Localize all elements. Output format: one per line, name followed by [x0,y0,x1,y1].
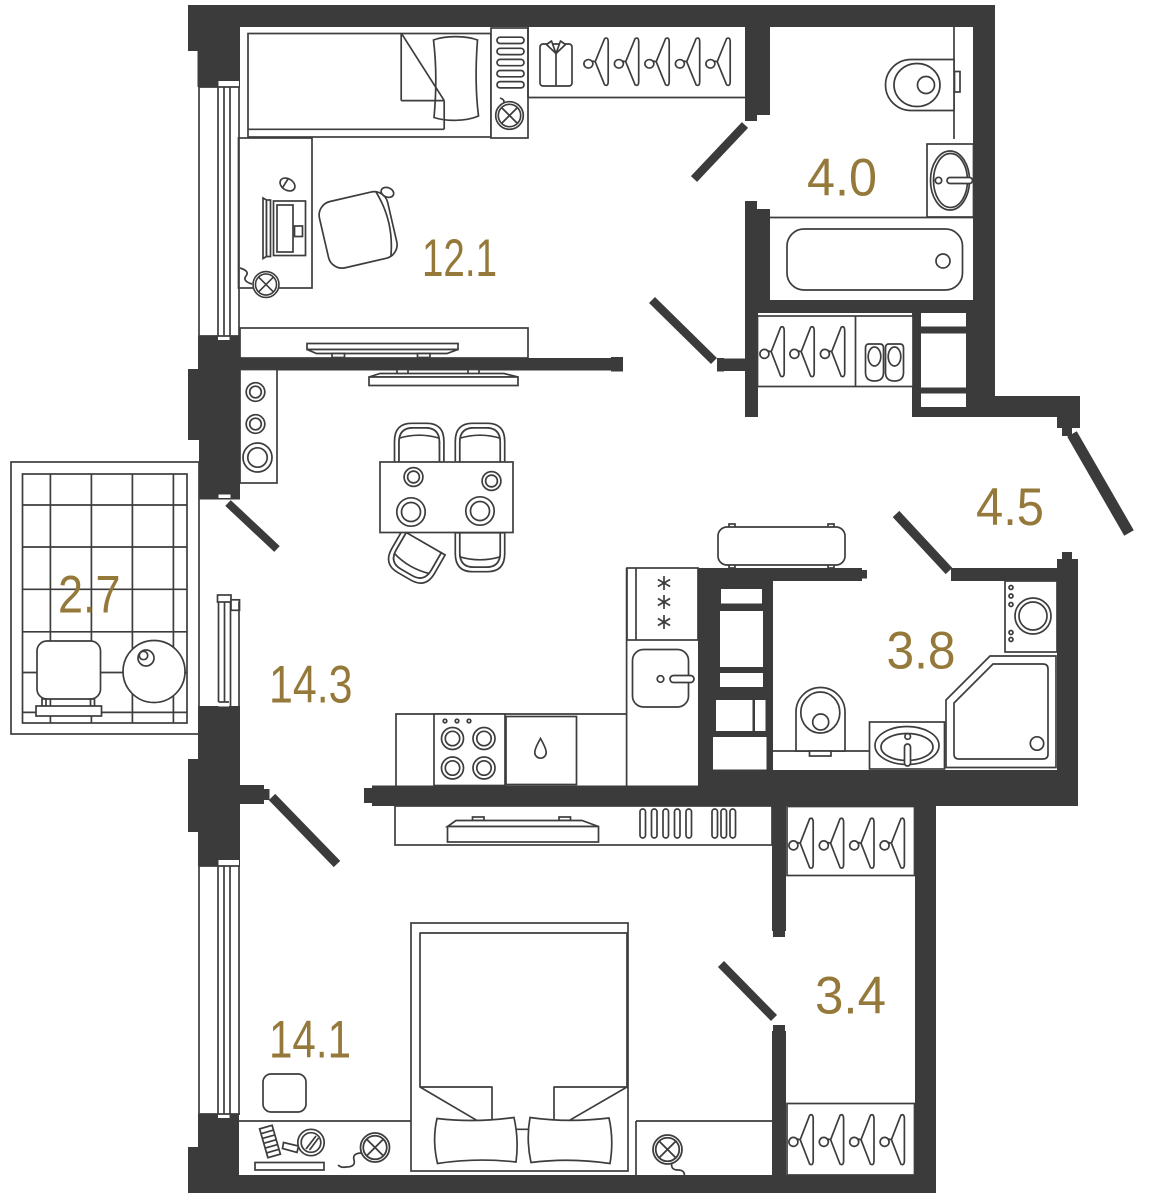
svg-text:14.3: 14.3 [269,656,353,715]
svg-text:4.0: 4.0 [807,149,877,208]
svg-text:3.4: 3.4 [815,967,886,1026]
svg-text:3.8: 3.8 [887,622,956,681]
svg-text:4.5: 4.5 [976,478,1044,537]
svg-text:2.7: 2.7 [58,566,121,625]
svg-text:12.1: 12.1 [422,229,497,288]
svg-text:14.1: 14.1 [269,1011,351,1070]
